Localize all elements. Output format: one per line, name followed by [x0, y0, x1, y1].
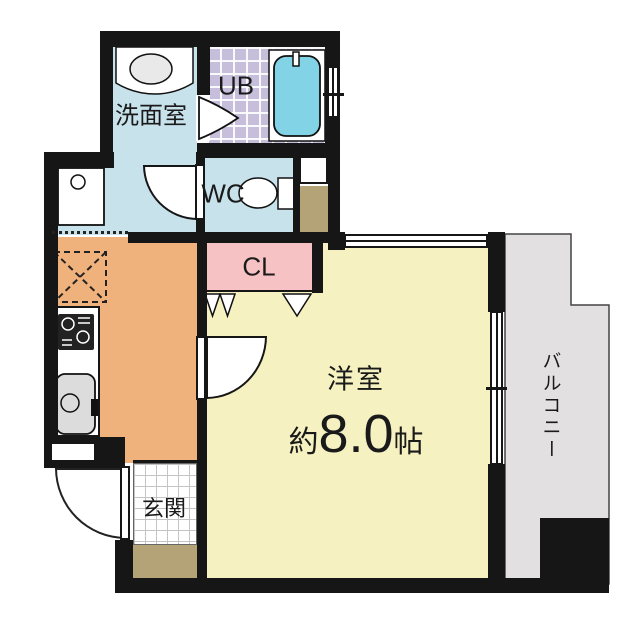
balcony-wall-block — [540, 518, 609, 593]
wall — [115, 578, 540, 593]
wall — [488, 232, 505, 312]
bathtub-faucet-icon — [293, 52, 299, 66]
bath-door-icon — [199, 97, 238, 139]
wall — [197, 399, 207, 578]
wall — [312, 243, 323, 293]
folding-door-icon — [205, 294, 311, 316]
wall — [328, 152, 340, 243]
meter-box — [50, 442, 96, 462]
wall — [197, 43, 210, 96]
wall — [100, 31, 340, 47]
label-western-room: 洋室 — [327, 358, 385, 397]
washing-machine-icon — [58, 168, 104, 225]
window-bath-tick — [323, 93, 344, 96]
window-bath — [327, 66, 339, 118]
label-closet: CL — [242, 252, 275, 283]
label-room-size-prefix: 約 — [288, 426, 318, 459]
wall — [115, 540, 133, 593]
label-room-size: 約8.0帖 — [288, 403, 423, 465]
label-toilet: WC — [201, 179, 244, 210]
western-room-door-leaf — [196, 336, 206, 400]
bathtub-icon — [274, 56, 320, 136]
wall — [197, 242, 207, 336]
kitchen-sink-icon — [56, 374, 98, 434]
wall — [197, 143, 340, 158]
wall — [133, 460, 197, 463]
window-north — [344, 234, 488, 248]
fixtures-layer — [0, 0, 640, 639]
window-east-tick — [486, 387, 507, 390]
wall — [44, 152, 58, 467]
stove-icon — [58, 314, 94, 350]
room-boundary-dashed — [52, 231, 128, 234]
wall — [196, 232, 340, 243]
label-balcony: バルコニー — [537, 351, 564, 461]
floor-plan: 洗面室 UB WC CL 洋室 約8.0帖 玄関 バルコニー — [0, 0, 640, 639]
wall — [328, 232, 345, 250]
label-room-size-unit: 帖 — [394, 426, 424, 459]
label-room-size-value: 8.0 — [318, 404, 393, 464]
entrance-door-leaf — [120, 466, 130, 540]
toilet-icon — [239, 178, 277, 208]
refrigerator-space-icon — [54, 252, 106, 302]
wall — [293, 152, 300, 242]
wall — [100, 31, 113, 168]
wall — [128, 232, 197, 243]
label-washroom: 洗面室 — [115, 96, 187, 131]
washbasin-icon — [130, 54, 172, 84]
label-entrance: 玄関 — [142, 491, 186, 523]
label-unit-bath: UB — [218, 71, 254, 102]
wall — [488, 464, 505, 593]
